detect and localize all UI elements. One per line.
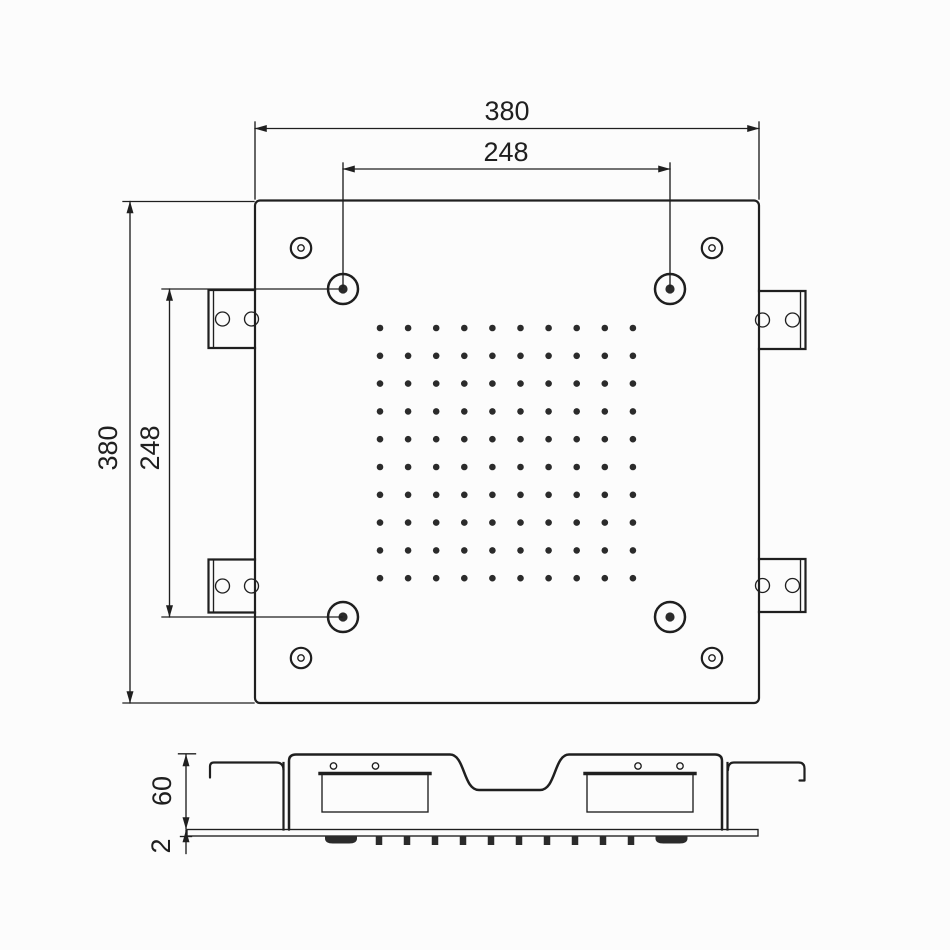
nozzle-dot-grid [377,325,637,582]
technical-drawing: 380 248 380 248 [0,0,950,950]
flange-left [210,763,284,778]
section-hole [330,763,336,769]
bracket-hole [216,312,230,326]
bracket-hole [756,579,770,593]
section-hole [372,763,378,769]
body-outline [289,755,722,830]
bracket-bottom-left [209,560,259,613]
dome-nozzle-left [325,836,357,844]
bracket-hole [245,579,259,593]
bracket-top-right [756,291,806,349]
screw-hole-bottom-right [702,648,722,668]
bracket-section-right [585,763,695,812]
dim-label-top-hole-spacing: 248 [483,137,528,167]
plan-dimensions: 380 248 380 248 [93,96,759,703]
bracket-section-left [320,763,430,812]
dim-left-hole-spacing: 248 [135,289,342,617]
plan-view [209,201,806,704]
section-hole [677,763,683,769]
dim-label-top-width: 380 [484,96,529,126]
screw-hole-top-right [702,238,722,258]
dome-nozzle-right [656,836,688,844]
bracket-top-left [209,290,259,348]
drawing-canvas: 380 248 380 248 [0,0,950,950]
dim-top-hole-spacing: 248 [343,137,670,287]
bracket-hole [756,313,770,327]
drain-teeth-row [376,836,635,846]
dim-label-left-height: 380 [93,425,123,470]
screw-hole-top-left [291,238,311,258]
mount-hole-bottom-right [655,602,685,632]
bracket-hole [216,579,230,593]
base-plate [187,830,758,837]
screw-holes [291,238,722,668]
section-hole [635,763,641,769]
dim-left-height: 380 [93,202,254,704]
side-dimensions: 60 2 [146,754,196,854]
bracket-hole [245,312,259,326]
dim-label-base-thickness: 2 [146,838,176,853]
bracket-bottom-right [756,559,806,612]
side-view [187,755,805,846]
dim-label-left-hole-spacing: 248 [135,425,165,470]
bracket-hole [786,579,800,593]
shower-plate-outline [255,201,759,704]
dim-label-side-height: 60 [147,776,177,806]
flange-right [728,763,805,781]
dim-base-thickness: 2 [146,831,192,854]
bracket-hole [786,313,800,327]
screw-hole-bottom-left [291,648,311,668]
dim-side-height: 60 [147,754,196,829]
